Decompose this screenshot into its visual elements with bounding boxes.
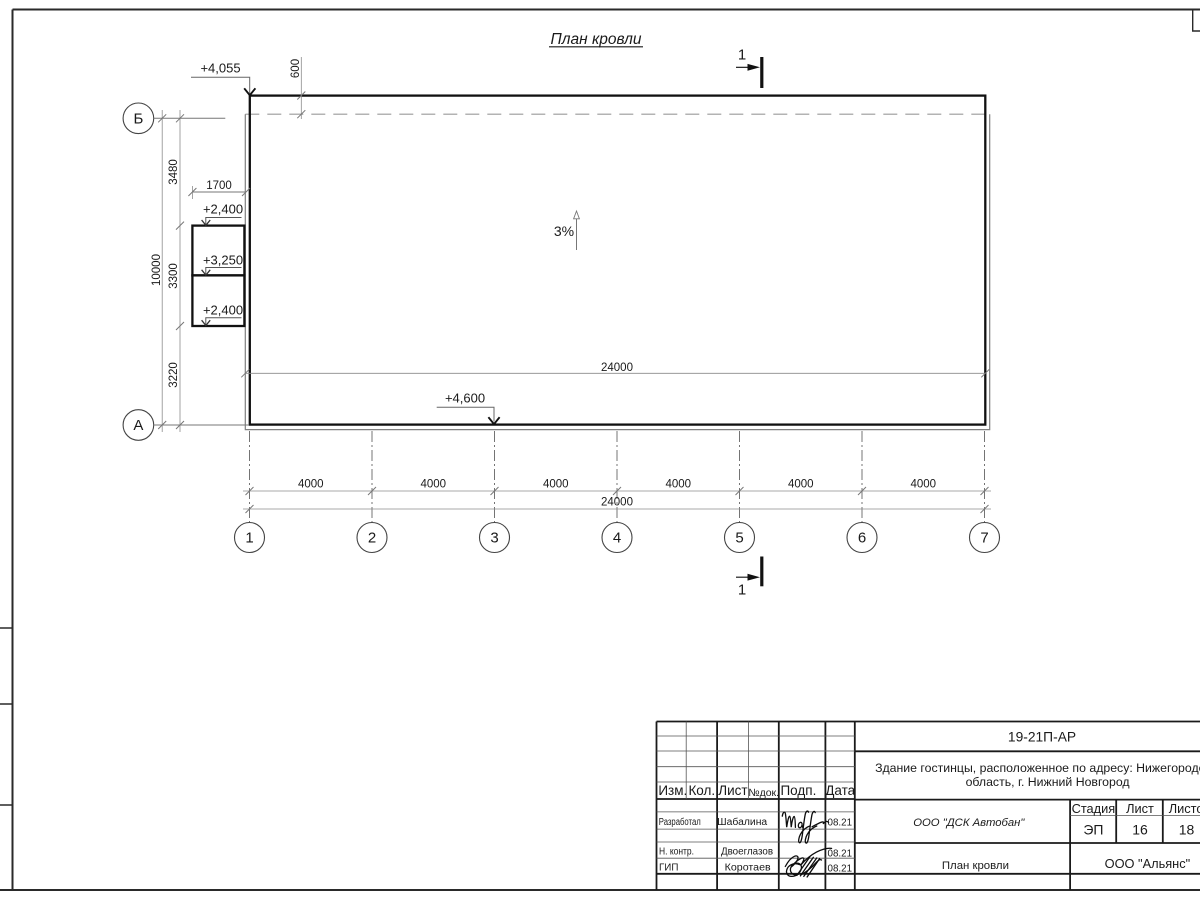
svg-text:+4,055: +4,055 <box>200 61 240 76</box>
svg-text:Дата: Дата <box>825 783 855 798</box>
svg-text:Кол.: Кол. <box>688 783 715 798</box>
svg-text:3%: 3% <box>554 223 574 239</box>
svg-text:ЭП: ЭП <box>1083 822 1103 838</box>
svg-text:1: 1 <box>738 582 746 599</box>
svg-text:Здание гостинцы, расположенное: Здание гостинцы, расположенное по адресу… <box>875 761 1200 775</box>
svg-text:19-21П-АР: 19-21П-АР <box>1008 730 1076 745</box>
svg-text:4000: 4000 <box>543 479 569 491</box>
svg-text:4000: 4000 <box>298 479 324 491</box>
svg-text:08.21: 08.21 <box>828 864 853 875</box>
svg-text:Подп.: Подп. <box>780 783 816 798</box>
svg-text:2: 2 <box>368 530 376 547</box>
svg-text:Двоеглазов: Двоеглазов <box>721 847 773 858</box>
svg-text:Лист: Лист <box>718 783 747 798</box>
svg-text:+4,600: +4,600 <box>445 391 485 406</box>
svg-text:Лист: Лист <box>1126 801 1154 816</box>
svg-text:Шабалина: Шабалина <box>717 817 768 828</box>
svg-text:18: 18 <box>1179 822 1195 838</box>
svg-text:3: 3 <box>490 530 498 547</box>
svg-text:Изм.: Изм. <box>658 783 687 798</box>
svg-text:+2,400: +2,400 <box>203 303 243 318</box>
svg-text:Коротаев: Коротаев <box>725 863 771 874</box>
svg-text:А: А <box>133 417 143 434</box>
svg-text:24000: 24000 <box>601 362 633 374</box>
svg-text:6: 6 <box>858 530 866 547</box>
svg-text:область, г. Нижний Новгород: область, г. Нижний Новгород <box>966 775 1130 789</box>
svg-text:08.21: 08.21 <box>828 818 853 829</box>
svg-text:3220: 3220 <box>168 362 180 388</box>
svg-text:10000: 10000 <box>151 254 163 286</box>
svg-text:4: 4 <box>613 530 621 547</box>
svg-text:3480: 3480 <box>168 159 180 185</box>
svg-text:3300: 3300 <box>168 263 180 289</box>
svg-text:5: 5 <box>735 530 743 547</box>
svg-text:План кровли: План кровли <box>551 31 642 48</box>
svg-text:1: 1 <box>738 47 746 64</box>
svg-text:План кровли: План кровли <box>942 860 1009 872</box>
svg-text:600: 600 <box>290 59 302 78</box>
svg-text:24000: 24000 <box>601 497 633 509</box>
svg-text:ГИП: ГИП <box>659 863 678 874</box>
svg-text:08.21: 08.21 <box>828 849 853 860</box>
svg-text:Н. контр.: Н. контр. <box>659 847 694 858</box>
svg-text:Разработал: Разработал <box>659 817 701 828</box>
svg-text:Б: Б <box>133 111 143 128</box>
svg-text:4000: 4000 <box>911 479 937 491</box>
svg-text:+3,250: +3,250 <box>203 253 243 268</box>
svg-text:1: 1 <box>245 530 253 547</box>
svg-text:16: 16 <box>1132 822 1148 838</box>
svg-text:ООО "Альянс": ООО "Альянс" <box>1105 856 1191 871</box>
svg-text:Стадия: Стадия <box>1072 801 1116 816</box>
svg-text:7: 7 <box>980 530 988 547</box>
svg-text:1700: 1700 <box>206 180 232 192</box>
svg-text:4000: 4000 <box>421 479 447 491</box>
svg-text:№док.: №док. <box>748 787 779 799</box>
svg-text:Листов: Листов <box>1169 801 1200 816</box>
svg-text:ООО "ДСК Автобан": ООО "ДСК Автобан" <box>913 817 1025 829</box>
svg-text:+2,400: +2,400 <box>203 202 243 217</box>
svg-text:4000: 4000 <box>788 479 814 491</box>
svg-text:4000: 4000 <box>666 479 692 491</box>
